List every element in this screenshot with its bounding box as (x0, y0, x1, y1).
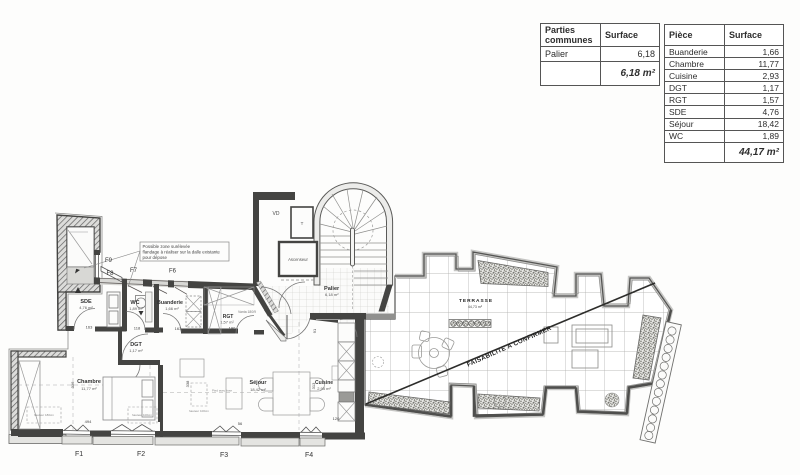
svg-text:1,17 m²: 1,17 m² (129, 348, 143, 353)
svg-text:120: 120 (333, 416, 340, 421)
svg-text:18,42 m²: 18,42 m² (250, 387, 266, 392)
svg-text:4,76 m²: 4,76 m² (79, 305, 93, 310)
svg-text:313: 313 (311, 382, 316, 389)
svg-text:Possible zone surélevée: Possible zone surélevée (143, 244, 191, 249)
svg-text:338: 338 (185, 380, 190, 387)
svg-text:hauteur 180cm: hauteur 180cm (34, 413, 55, 417)
svg-text:118: 118 (134, 326, 141, 331)
svg-text:1,57 m²: 1,57 m² (220, 320, 234, 325)
svg-text:F4: F4 (305, 452, 313, 459)
svg-text:336: 336 (70, 381, 75, 388)
svg-text:44,73 m²: 44,73 m² (468, 305, 483, 309)
svg-text:F6: F6 (169, 269, 177, 275)
svg-text:2,93 m²: 2,93 m² (317, 386, 331, 391)
svg-text:hauteur 100cm: hauteur 100cm (189, 409, 210, 413)
svg-text:Ascenseur: Ascenseur (288, 257, 308, 262)
svg-text:F1: F1 (75, 451, 83, 458)
svg-text:hauteur 100cm: hauteur 100cm (132, 413, 153, 417)
svg-text:F2: F2 (137, 451, 145, 458)
svg-text:163: 163 (175, 326, 182, 331)
svg-text:TERRASSE: TERRASSE (459, 298, 493, 304)
svg-text:Pied avec lisse: Pied avec lisse (212, 389, 232, 393)
svg-text:Vanta 180/9: Vanta 180/9 (238, 310, 256, 314)
svg-text:11,77 m²: 11,77 m² (81, 386, 97, 391)
svg-text:Séjour: Séjour (249, 380, 267, 386)
svg-text:F7: F7 (130, 268, 138, 274)
svg-text:1,89 m²: 1,89 m² (129, 306, 143, 311)
svg-text:6,18 m²: 6,18 m² (325, 292, 339, 297)
svg-text:flandage à réaliser sur la dal: flandage à réaliser sur la dalle existan… (143, 250, 221, 255)
svg-text:F9: F9 (105, 258, 113, 264)
svg-text:494: 494 (85, 419, 92, 424)
svg-text:F3: F3 (220, 452, 228, 459)
svg-text:F8: F8 (107, 271, 115, 277)
svg-text:pour dépose: pour dépose (143, 255, 168, 260)
svg-text:190: 190 (229, 326, 236, 331)
svg-text:T: T (301, 221, 304, 226)
svg-text:1,66 m²: 1,66 m² (165, 306, 179, 311)
svg-text:VD: VD (273, 211, 280, 217)
svg-text:Chambre: Chambre (77, 379, 101, 385)
svg-text:163: 163 (86, 325, 93, 330)
svg-text:91: 91 (312, 328, 317, 333)
svg-text:56: 56 (238, 421, 243, 426)
